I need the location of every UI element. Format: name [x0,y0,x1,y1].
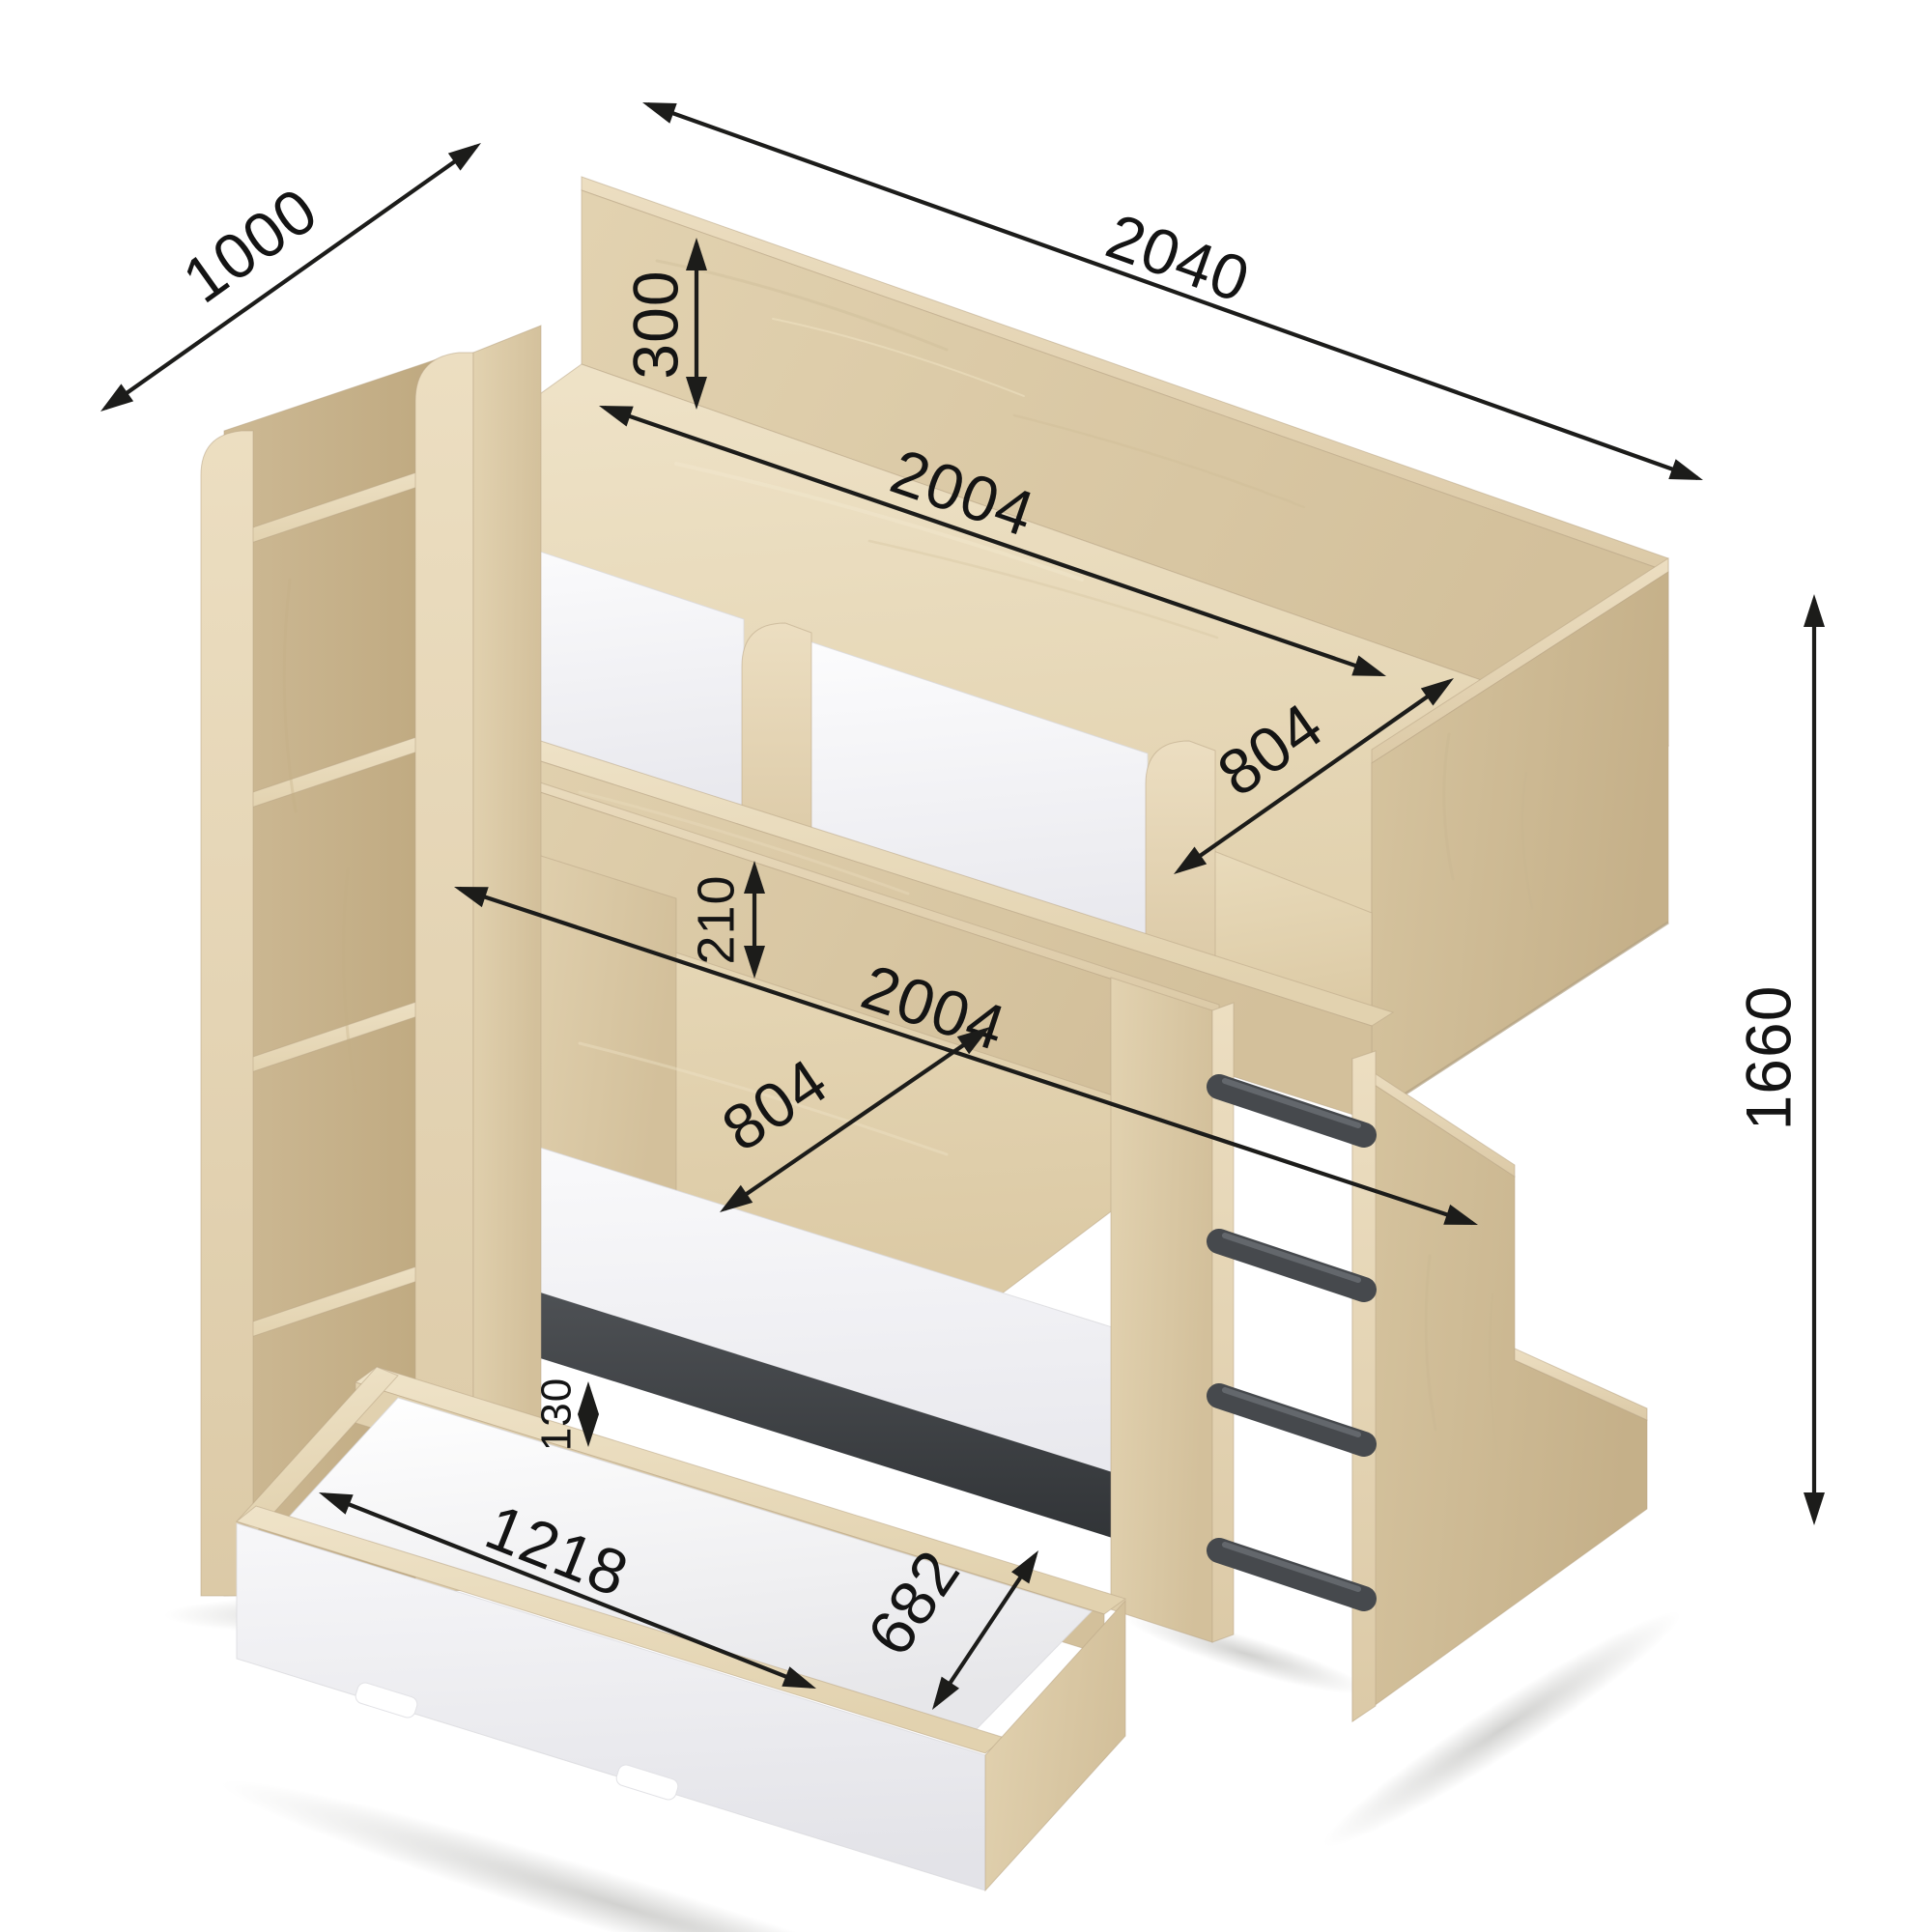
rail-divider-right [1146,741,1215,970]
shelf-column-front-panel [201,431,253,1596]
dimension-label-overall-height: 1660 [1732,985,1804,1131]
diagram-page: 1000204030020048042102004804130121868216… [0,0,1932,1932]
dimension-label-lower-guard-height: 210 [687,874,745,964]
dimension-drawer-depth: 130 [533,1378,599,1451]
dimension-lower-guard-height: 210 [687,861,765,979]
ladder-stile [1111,978,1212,1642]
dimension-label-top-guard-height: 300 [619,270,691,379]
bunk-bed-dimension-diagram: 1000204030020048042102004804130121868216… [0,0,1932,1932]
dimension-label-drawer-depth: 130 [533,1378,581,1451]
